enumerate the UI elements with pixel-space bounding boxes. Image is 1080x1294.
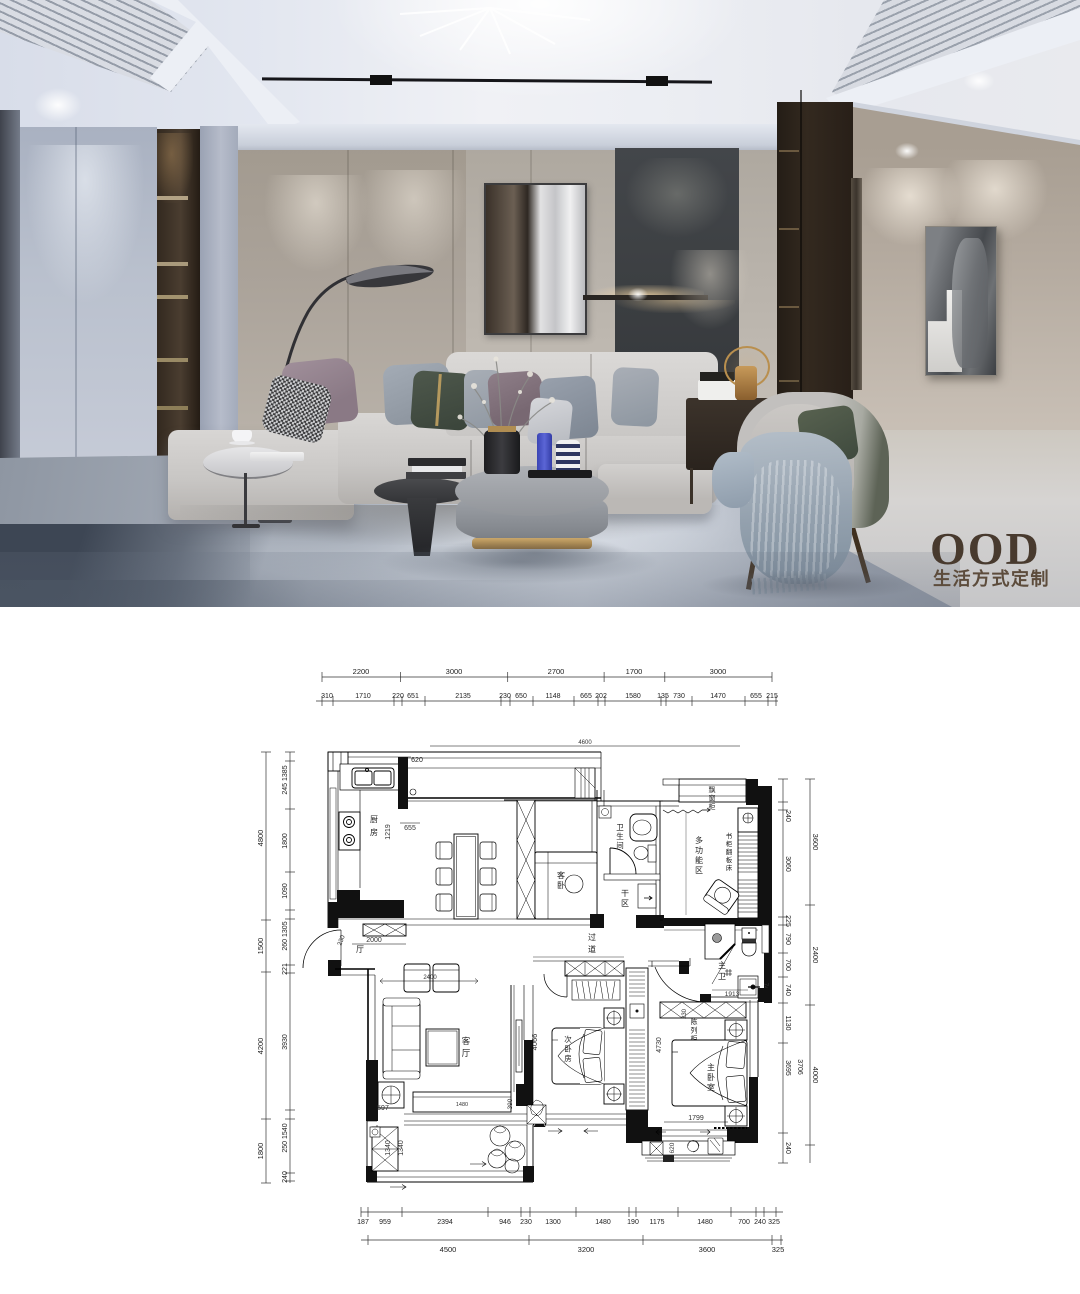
svg-text:730: 730 [673, 693, 685, 700]
svg-text:2200: 2200 [353, 667, 370, 676]
svg-text:书柜翻板床: 书柜翻板床 [726, 831, 733, 872]
svg-text:790: 790 [784, 933, 791, 945]
svg-text:飘窗柜: 飘窗柜 [709, 786, 716, 811]
svg-text:1340: 1340 [398, 1140, 405, 1156]
svg-text:卫生间: 卫生间 [616, 823, 624, 850]
svg-text:主卧室: 主卧室 [707, 1062, 715, 1092]
svg-text:946: 946 [499, 1219, 511, 1226]
svg-text:厅: 厅 [356, 945, 364, 954]
svg-text:202: 202 [595, 693, 607, 700]
svg-text:651: 651 [407, 693, 419, 700]
svg-text:240: 240 [282, 1171, 289, 1183]
svg-text:1148: 1148 [545, 693, 560, 700]
svg-text:3600: 3600 [811, 834, 820, 851]
svg-text:245 1385: 245 1385 [282, 765, 289, 794]
svg-text:1710: 1710 [355, 693, 371, 700]
svg-text:230: 230 [520, 1219, 532, 1226]
svg-text:1470: 1470 [710, 693, 726, 700]
svg-text:230: 230 [336, 934, 346, 947]
svg-text:3200: 3200 [578, 1245, 595, 1254]
svg-text:650: 650 [515, 693, 527, 700]
svg-text:2400: 2400 [423, 975, 437, 981]
svg-text:220: 220 [392, 693, 404, 700]
svg-text:1090: 1090 [282, 883, 289, 899]
svg-text:1480: 1480 [456, 1102, 468, 1108]
svg-text:1800: 1800 [282, 833, 289, 849]
svg-text:1175: 1175 [649, 1219, 664, 1226]
svg-text:1480: 1480 [697, 1219, 713, 1226]
svg-text:1799: 1799 [688, 1115, 704, 1122]
svg-text:3930: 3930 [282, 1034, 289, 1050]
svg-text:1700: 1700 [626, 667, 643, 676]
svg-text:1300: 1300 [545, 1219, 561, 1226]
svg-text:665: 665 [580, 693, 592, 700]
svg-text:1913: 1913 [725, 991, 740, 998]
svg-text:700: 700 [784, 959, 791, 971]
svg-text:1800: 1800 [256, 1143, 265, 1160]
svg-text:325: 325 [768, 1219, 780, 1226]
svg-text:4600: 4600 [578, 740, 592, 746]
svg-text:230: 230 [499, 693, 511, 700]
svg-text:1219: 1219 [385, 824, 392, 840]
svg-text:190: 190 [627, 1219, 639, 1226]
svg-text:215: 215 [766, 693, 778, 700]
svg-text:390: 390 [507, 1098, 514, 1109]
svg-text:187: 187 [357, 1219, 369, 1226]
svg-text:4000: 4000 [811, 1067, 820, 1084]
svg-text:多功能区: 多功能区 [695, 835, 703, 875]
svg-text:主卫: 主卫 [718, 960, 726, 981]
svg-text:过道: 过道 [588, 932, 596, 954]
svg-text:4200: 4200 [256, 1038, 265, 1055]
svg-text:325: 325 [772, 1245, 785, 1254]
svg-text:225: 225 [784, 915, 791, 927]
svg-text:3695: 3695 [784, 1060, 791, 1076]
svg-text:260 1305: 260 1305 [282, 921, 289, 950]
svg-text:3000: 3000 [446, 667, 463, 676]
svg-text:1500: 1500 [256, 938, 265, 955]
svg-text:4800: 4800 [256, 830, 265, 847]
svg-text:次卧房: 次卧房 [564, 1034, 572, 1063]
svg-text:740: 740 [784, 984, 791, 996]
svg-text:干区: 干区 [621, 889, 629, 908]
svg-text:250 1540: 250 1540 [282, 1123, 289, 1152]
svg-text:221: 221 [282, 963, 289, 975]
svg-text:厨房: 厨房 [370, 815, 378, 837]
svg-text:959: 959 [379, 1219, 391, 1226]
svg-text:135: 135 [657, 693, 669, 700]
svg-text:620: 620 [669, 1142, 676, 1153]
svg-text:3060: 3060 [784, 856, 791, 872]
svg-text:3600: 3600 [699, 1245, 716, 1254]
svg-text:2394: 2394 [437, 1219, 453, 1226]
svg-text:655: 655 [404, 825, 416, 832]
svg-text:1340: 1340 [385, 1140, 392, 1156]
svg-text:1580: 1580 [625, 693, 641, 700]
svg-text:3000: 3000 [710, 667, 727, 676]
svg-text:240: 240 [754, 1219, 766, 1226]
svg-text:655: 655 [750, 693, 762, 700]
svg-text:2700: 2700 [548, 667, 565, 676]
svg-text:2000: 2000 [366, 937, 382, 944]
svg-text:230: 230 [682, 1008, 688, 1019]
svg-text:4730: 4730 [656, 1037, 663, 1053]
svg-text:3706: 3706 [796, 1059, 803, 1075]
svg-text:客厅: 客厅 [462, 1036, 471, 1058]
svg-text:240: 240 [784, 1142, 791, 1154]
svg-text:1480: 1480 [595, 1219, 611, 1226]
svg-text:2135: 2135 [455, 693, 471, 700]
svg-text:700: 700 [738, 1219, 750, 1226]
svg-text:310: 310 [321, 693, 333, 700]
svg-text:1130: 1130 [784, 1015, 791, 1030]
svg-text:2400: 2400 [811, 947, 820, 964]
svg-text:597: 597 [377, 1105, 389, 1112]
svg-text:240: 240 [784, 810, 791, 822]
svg-text:陈列柜: 陈列柜 [691, 1017, 698, 1043]
svg-text:4500: 4500 [440, 1245, 457, 1254]
